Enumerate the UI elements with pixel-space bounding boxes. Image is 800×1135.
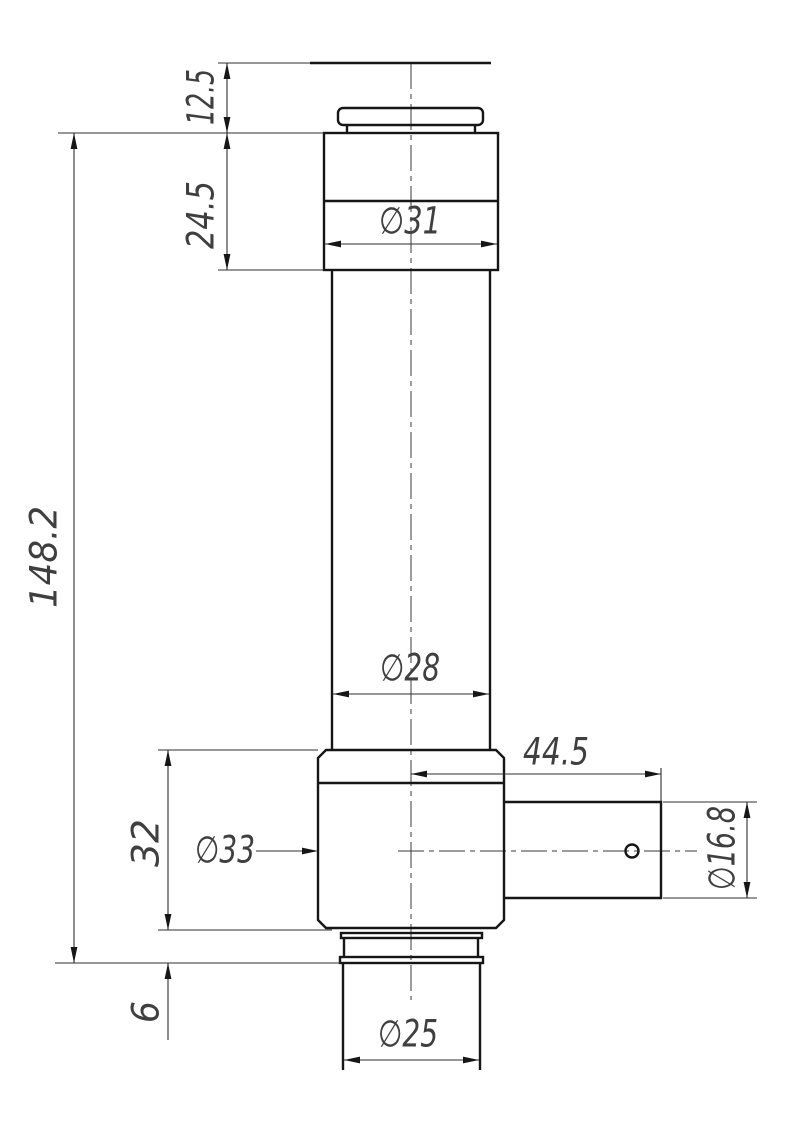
technical-drawing-canvas: 12.5 24.5 148.2 32 6 ∅31 ∅28 44.5 ∅33 ∅1…	[0, 0, 800, 1135]
arrow-boss-dia-down	[744, 882, 751, 898]
arrow-head-dia-right	[481, 241, 497, 248]
part-drawing-svg: 12.5 24.5 148.2 32 6 ∅31 ∅28 44.5 ∅33 ∅1…	[0, 0, 800, 1135]
dim-label-head-height: 24.5	[180, 181, 223, 249]
dim-label-boss-diameter: ∅16.8	[701, 806, 744, 890]
dim-label-overall-height: 148.2	[23, 506, 66, 608]
dim-label-flange-height: 6	[125, 1001, 168, 1023]
arrow-body-dia-right	[473, 691, 489, 698]
dimension-labels: 12.5 24.5 148.2 32 6 ∅31 ∅28 44.5 ∅33 ∅1…	[23, 69, 744, 1056]
centerlines	[398, 63, 697, 1000]
arrow-tail-dia-right	[463, 1057, 479, 1064]
arrow-top-step-up	[224, 63, 231, 79]
dim-label-head-diameter: ∅31	[379, 200, 441, 243]
arrow-body-dia-left	[333, 691, 349, 698]
dim-label-tail-diameter: ∅25	[378, 1013, 438, 1056]
arrow-hub-leader	[302, 848, 318, 855]
arrow-hub-up	[165, 750, 172, 766]
arrow-top-step-down	[224, 117, 231, 133]
arrow-boss-len-right	[645, 771, 661, 778]
dim-label-boss-length: 44.5	[523, 731, 589, 774]
dim-label-body-diameter: ∅28	[380, 647, 440, 690]
arrow-head-up	[224, 133, 231, 149]
part-outline	[310, 63, 661, 1070]
arrow-head-down	[224, 254, 231, 270]
dim-label-hub-diameter: ∅33	[195, 829, 255, 872]
arrow-boss-dia-up	[744, 802, 751, 818]
dim-label-hub-height: 32	[125, 819, 168, 867]
arrow-flange-up	[165, 963, 172, 979]
dim-label-top-step: 12.5	[180, 69, 223, 125]
arrow-boss-len-left	[411, 771, 427, 778]
arrow-head-dia-left	[325, 241, 341, 248]
arrow-hub-down	[165, 914, 172, 930]
arrow-tail-dia-left	[344, 1057, 360, 1064]
arrow-overall-up	[71, 133, 78, 149]
arrow-overall-down	[71, 947, 78, 963]
